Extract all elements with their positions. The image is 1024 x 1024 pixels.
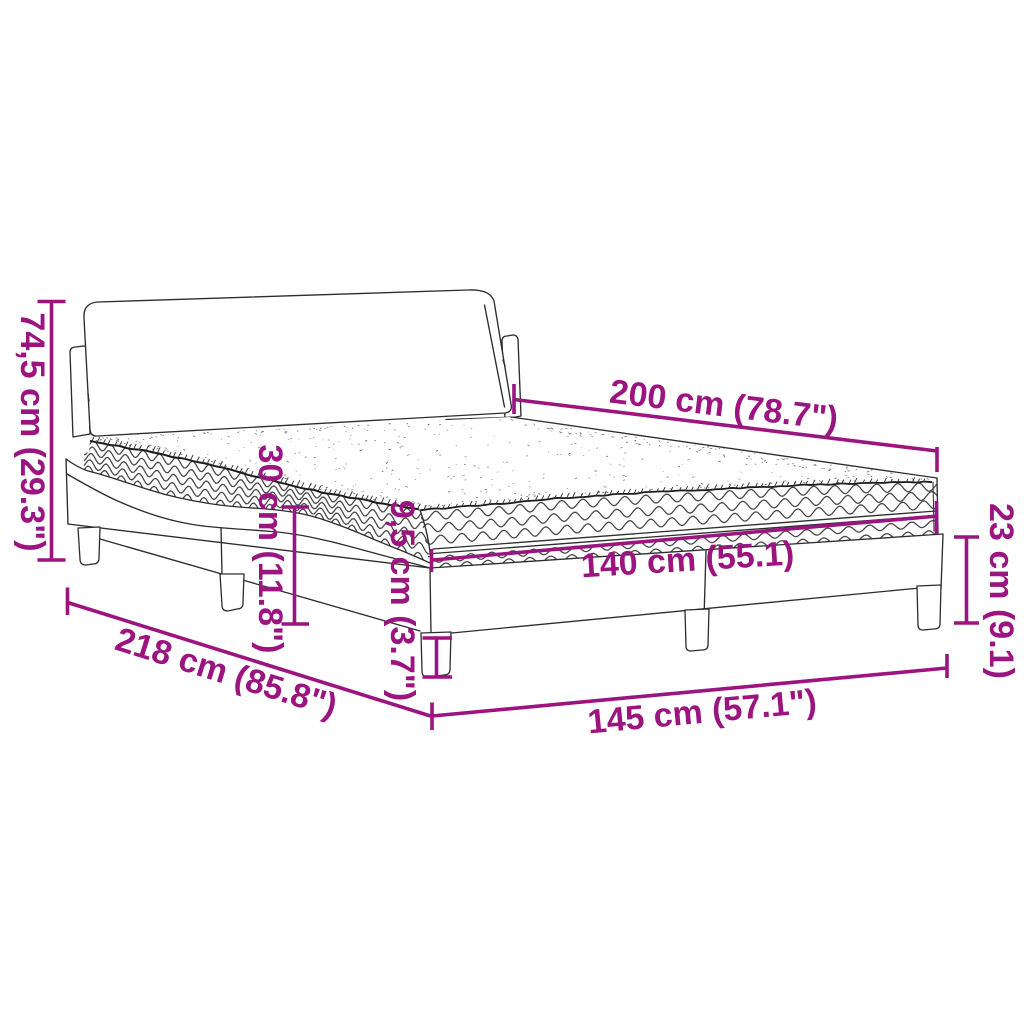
svg-text:74,5 cm (29.3"): 74,5 cm (29.3") xyxy=(13,312,51,551)
svg-text:23 cm (9.1): 23 cm (9.1) xyxy=(982,503,1020,679)
svg-text:9,5 cm (3.7"): 9,5 cm (3.7") xyxy=(383,500,421,701)
svg-text:30 cm (11.8"): 30 cm (11.8") xyxy=(251,445,289,654)
